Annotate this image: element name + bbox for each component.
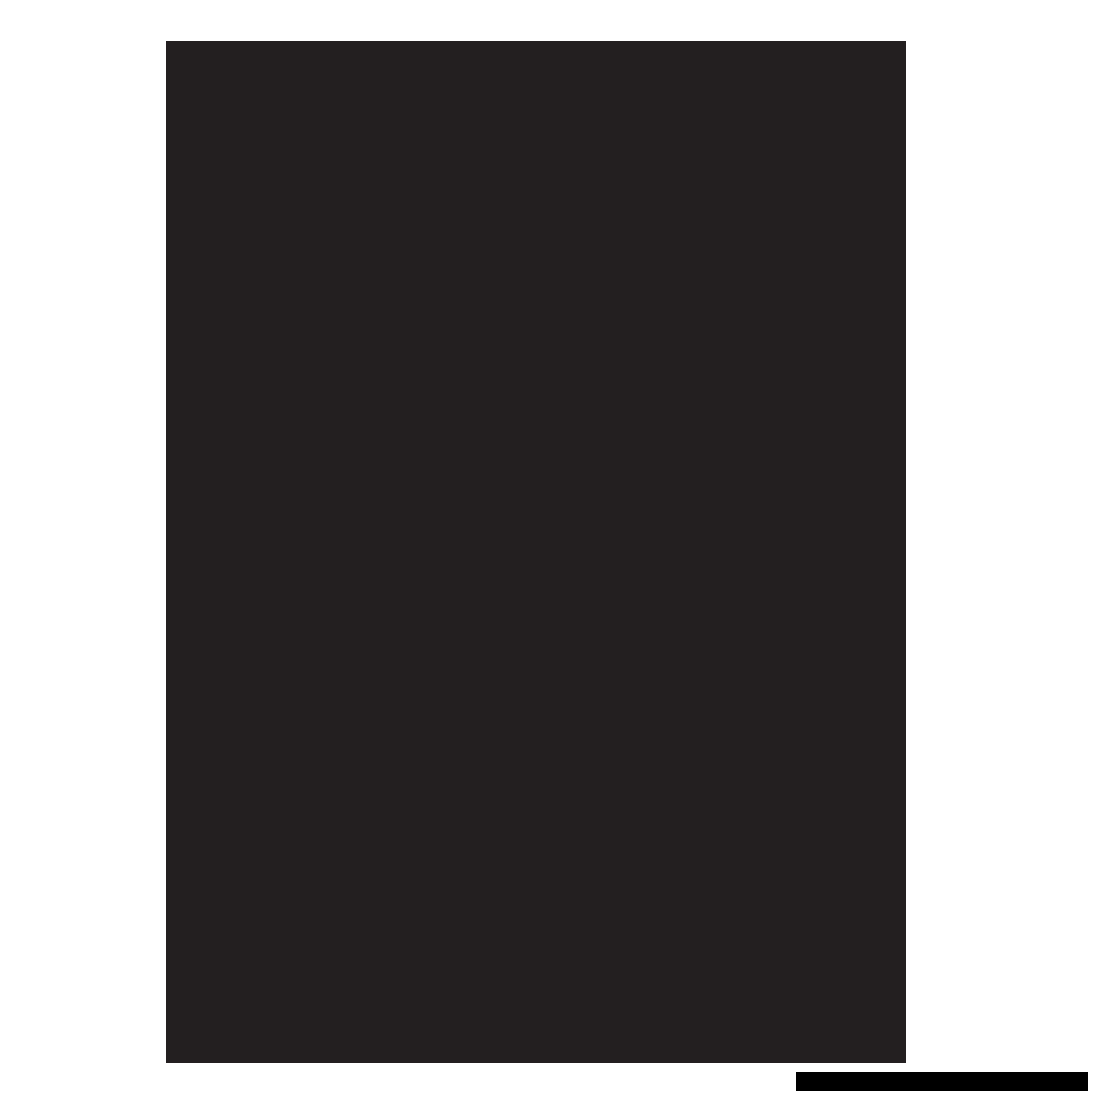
redaction-bar	[796, 1072, 1088, 1091]
document-page	[166, 41, 906, 1063]
viewer-canvas	[0, 0, 1100, 1100]
